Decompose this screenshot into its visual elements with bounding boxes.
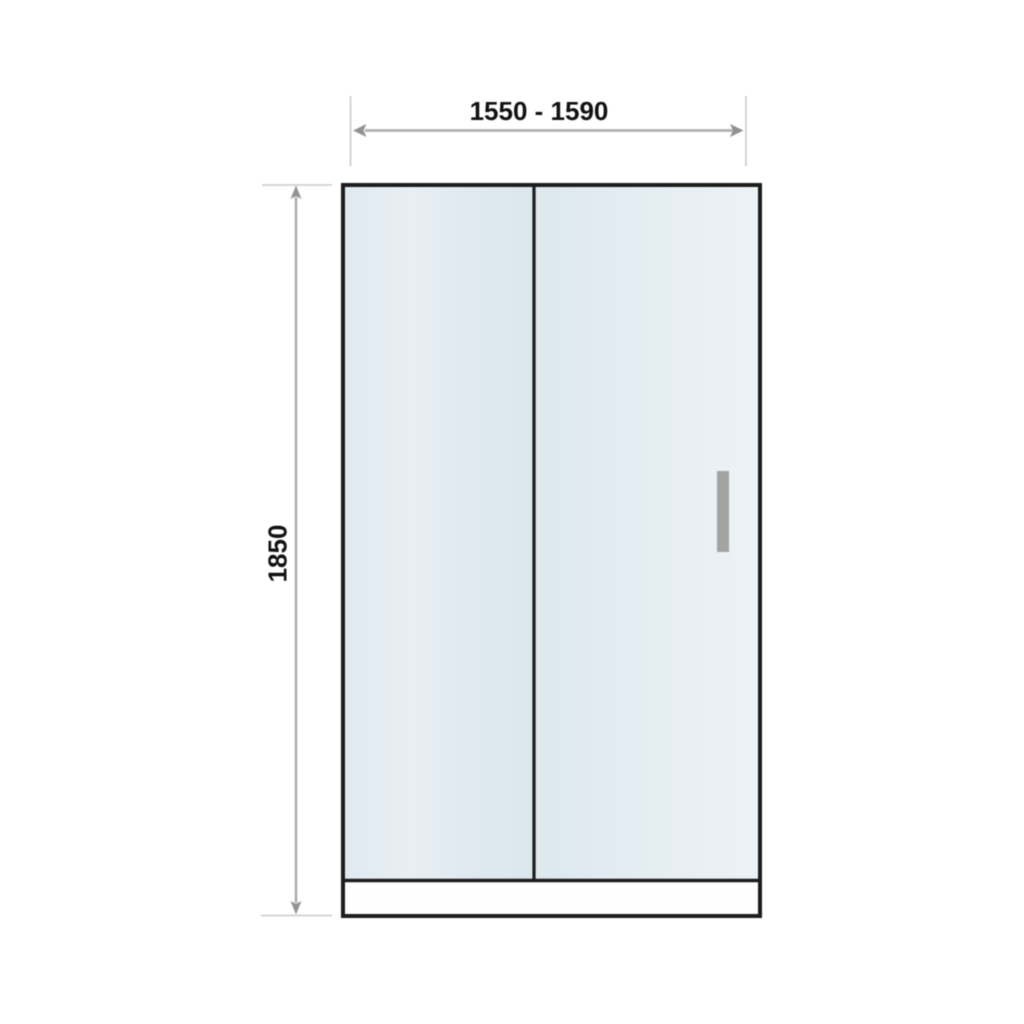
svg-text:1550 - 1590: 1550 - 1590 bbox=[470, 96, 609, 126]
svg-text:1850: 1850 bbox=[263, 525, 293, 583]
